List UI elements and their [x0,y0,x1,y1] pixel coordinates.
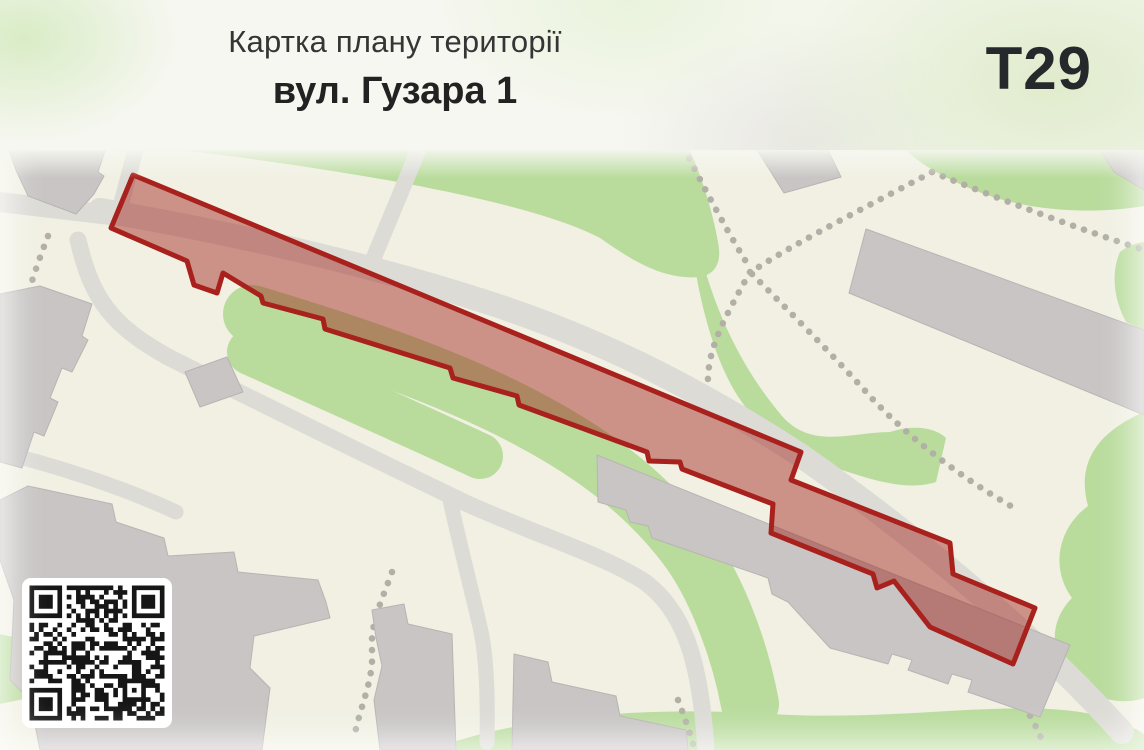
territory-badge: Т29 [986,34,1092,103]
street-subtitle: вул. Гузара 1 [0,70,790,113]
territory-plan-card: Картка плану території вул. Гузара 1 Т29 [0,0,1144,750]
page-title: Картка плану території [0,24,790,60]
card-header: Картка плану території вул. Гузара 1 Т29 [0,0,1144,150]
title-block: Картка плану території вул. Гузара 1 [0,24,790,113]
qr-card [22,578,172,728]
